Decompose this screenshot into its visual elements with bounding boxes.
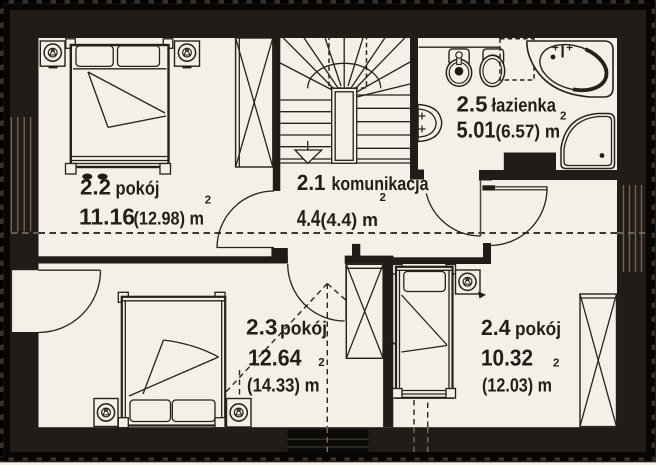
svg-text:2: 2 [205, 195, 211, 207]
svg-text:(12.03) m: (12.03) m [482, 376, 552, 397]
svg-text:(12.98) m: (12.98) m [134, 208, 205, 229]
svg-text:11.16: 11.16 [79, 204, 135, 230]
svg-text:(4.4) m: (4.4) m [321, 209, 379, 230]
svg-text:pokój: pokój [280, 319, 327, 340]
svg-text:5.01: 5.01 [457, 117, 496, 143]
svg-text:2.1: 2.1 [297, 170, 326, 195]
svg-text:2.3: 2.3 [246, 315, 278, 340]
svg-text:(6.57) m: (6.57) m [496, 121, 561, 142]
svg-text:2.4: 2.4 [481, 315, 511, 340]
svg-text:pokój: pokój [116, 178, 160, 199]
svg-text:2.5: 2.5 [457, 92, 488, 117]
svg-text:4.4: 4.4 [297, 205, 321, 231]
svg-text:10.32: 10.32 [481, 345, 533, 371]
svg-text:2: 2 [380, 192, 386, 204]
svg-text:2: 2 [560, 111, 566, 123]
svg-text:łazienka: łazienka [492, 96, 557, 117]
svg-text:(14.33) m: (14.33) m [247, 376, 320, 397]
svg-text:12.64: 12.64 [248, 345, 302, 371]
svg-text:2: 2 [318, 357, 324, 369]
svg-text:2: 2 [553, 357, 559, 369]
svg-text:pokój: pokój [515, 319, 561, 340]
svg-text:2.2: 2.2 [80, 174, 111, 199]
